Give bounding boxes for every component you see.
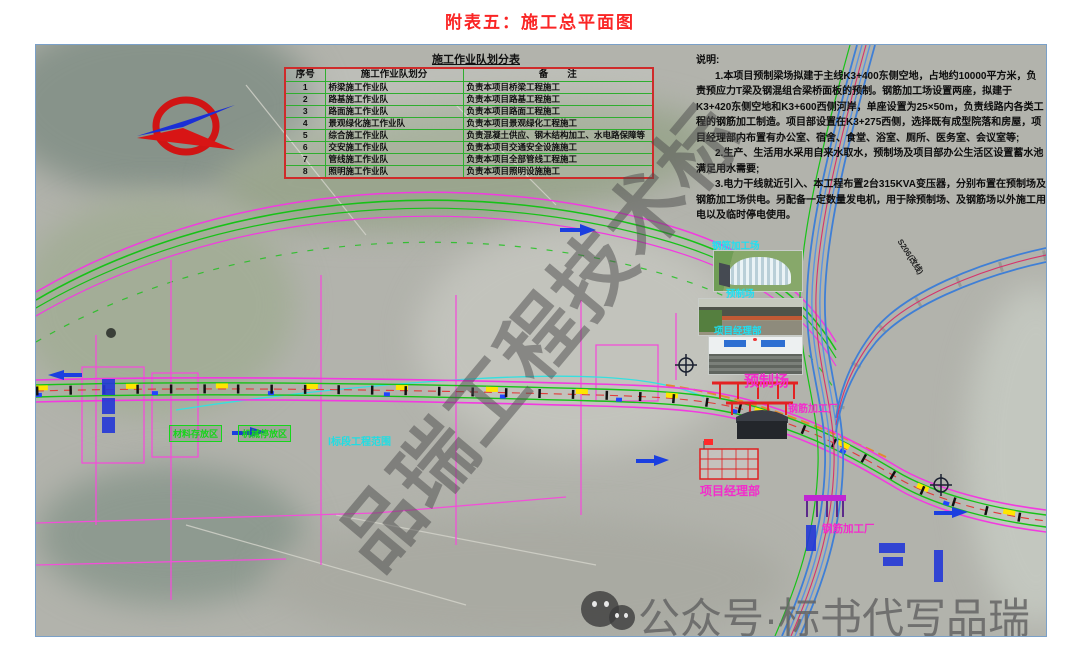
table-cell: 负责本项目桥梁工程施工 xyxy=(463,82,653,94)
table-row: 3路面施工作业队负责本项目路面工程施工 xyxy=(285,106,653,118)
table-cell: 负责本项目全部管线工程施工 xyxy=(463,153,653,165)
table-cell: 负责本项目景观绿化工程施工 xyxy=(463,118,653,130)
table-cell: 管线施工作业队 xyxy=(325,153,463,165)
notes-item: 3.电力干线就近引入、本工程布置2台315KVA变压器，分别布置在预制场及钢筋加… xyxy=(696,177,1046,224)
team-table: 序号 施工作业队划分 备 注 1桥梁施工作业队负责本项目桥梁工程施工 2路基施工… xyxy=(284,67,654,179)
table-cell: 7 xyxy=(285,153,325,165)
table-cell: 负责本项目路面工程施工 xyxy=(463,106,653,118)
col-header-no: 序号 xyxy=(285,68,325,82)
col-header-team: 施工作业队划分 xyxy=(325,68,463,82)
table-cell: 1 xyxy=(285,82,325,94)
table-cell: 桥梁施工作业队 xyxy=(325,82,463,94)
table-cell: 5 xyxy=(285,130,325,142)
document-page: { "page": { "title": "附表五：施工总平面图" }, "le… xyxy=(0,0,1080,650)
table-header-row: 序号 施工作业队划分 备 注 xyxy=(285,68,653,82)
table-row: 2路基施工作业队负责本项目路基工程施工 xyxy=(285,94,653,106)
photo-project-office xyxy=(708,336,803,375)
table-cell: 照明施工作业队 xyxy=(325,165,463,178)
table-cell: 3 xyxy=(285,106,325,118)
table-cell: 8 xyxy=(285,165,325,178)
table-cell: 6 xyxy=(285,141,325,153)
table-row: 1桥梁施工作业队负责本项目桥梁工程施工 xyxy=(285,82,653,94)
table-cell: 4 xyxy=(285,118,325,130)
col-header-note: 备 注 xyxy=(463,68,653,82)
table-row: 4景观绿化施工作业队负责本项目景观绿化工程施工 xyxy=(285,118,653,130)
photo-steel-yard xyxy=(713,250,803,292)
table-cell: 负责本项目照明设施施工 xyxy=(463,165,653,178)
notes-heading: 说明: xyxy=(696,53,1046,69)
photo-precast-yard xyxy=(698,298,803,336)
table-cell: 路面施工作业队 xyxy=(325,106,463,118)
table-row: 6交安施工作业队负责本项目交通安全设施施工 xyxy=(285,141,653,153)
compass-icon xyxy=(131,90,241,162)
table-cell: 交安施工作业队 xyxy=(325,141,463,153)
notes-block: 说明: 1.本项目预制梁场拟建于主线K3+400东侧空地，占地约10000平方米… xyxy=(696,53,1046,224)
wechat-icon xyxy=(581,591,641,637)
site-plan-map: 施工作业队划分表 序号 施工作业队划分 备 注 1桥梁施工作业队负责本项目桥梁工… xyxy=(35,44,1047,637)
table-cell: 路基施工作业队 xyxy=(325,94,463,106)
table-row: 7管线施工作业队负责本项目全部管线工程施工 xyxy=(285,153,653,165)
table-cell: 负责混凝土供应、钢木结构加工、水电路保障等 xyxy=(463,130,653,142)
notes-item: 1.本项目预制梁场拟建于主线K3+400东侧空地，占地约10000平方米，负责预… xyxy=(696,69,1046,147)
table-cell: 景观绿化施工作业队 xyxy=(325,118,463,130)
table-cell: 综合施工作业队 xyxy=(325,130,463,142)
table-row: 5综合施工作业队负责混凝土供应、钢木结构加工、水电路保障等 xyxy=(285,130,653,142)
table-cell: 负责本项目路基工程施工 xyxy=(463,94,653,106)
table-cell: 2 xyxy=(285,94,325,106)
team-table-title: 施工作业队划分表 xyxy=(391,51,561,67)
notes-item: 2.生产、生活用水采用自来水取水，预制场及项目部办公生活区设置蓄水池满足用水需要… xyxy=(696,146,1046,177)
table-row: 8照明施工作业队负责本项目照明设施施工 xyxy=(285,165,653,178)
table-cell: 负责本项目交通安全设施施工 xyxy=(463,141,653,153)
page-title: 附表五：施工总平面图 xyxy=(0,8,1080,33)
